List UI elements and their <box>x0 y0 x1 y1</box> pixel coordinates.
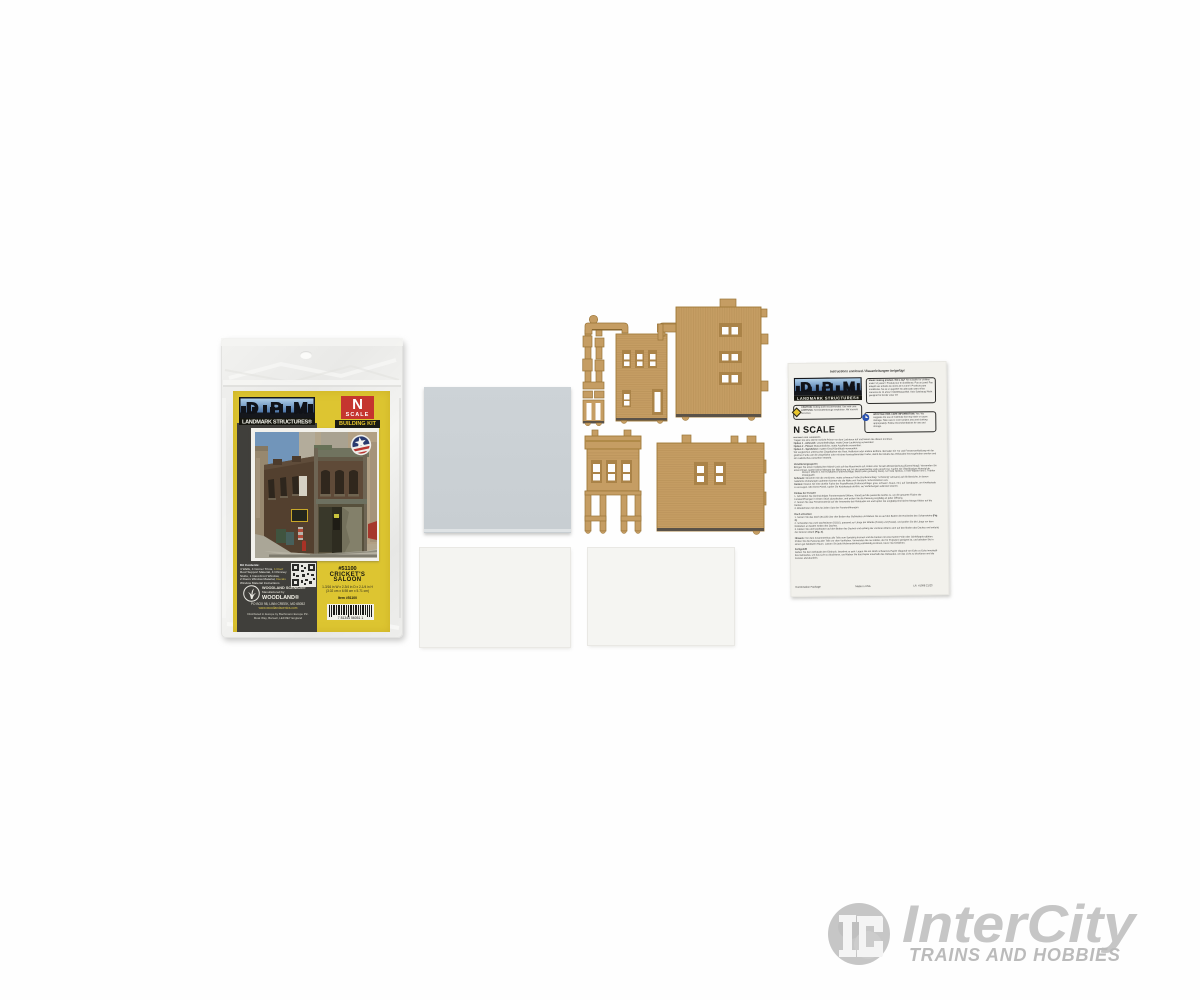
svg-text:LANDMARK STRUCTURES®: LANDMARK STRUCTURES® <box>797 395 859 401</box>
svg-text:LANDMARK STRUCTURES®: LANDMARK STRUCTURES® <box>242 419 313 426</box>
svg-text:DPM: DPM <box>800 380 855 396</box>
svg-text:DPM: DPM <box>246 399 308 417</box>
